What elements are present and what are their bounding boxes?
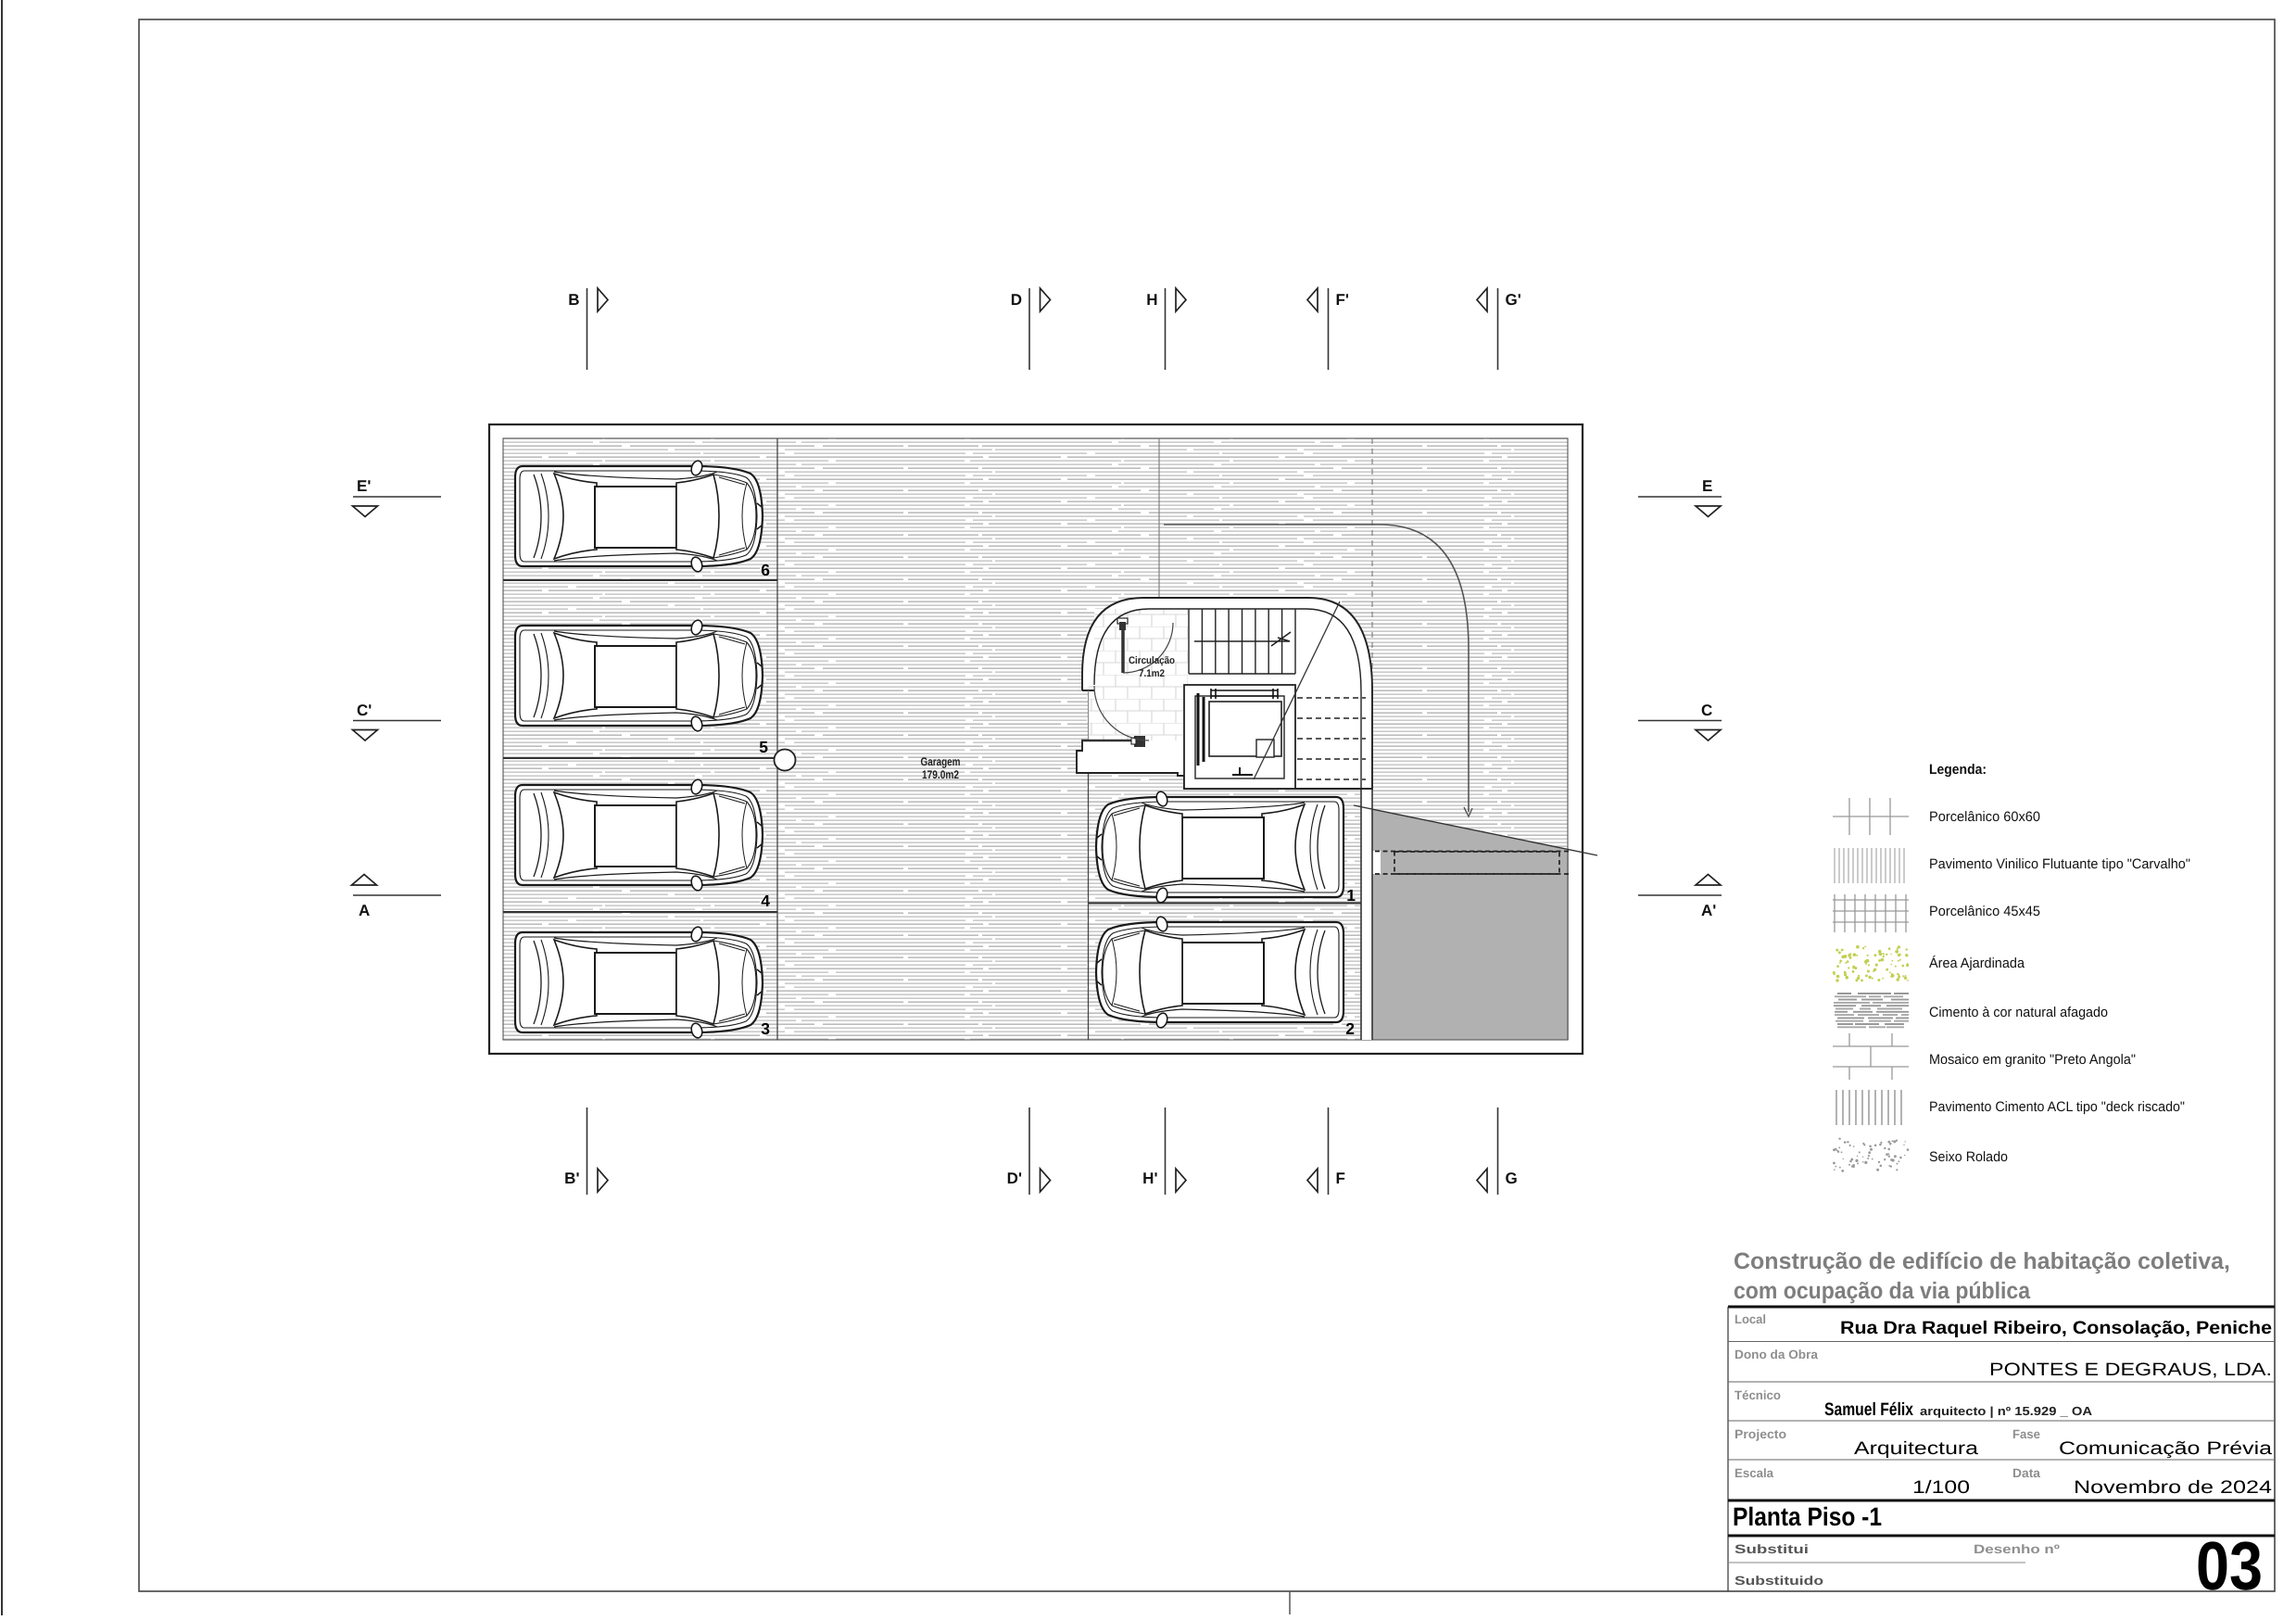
svg-text:Circulação: Circulação [1129, 655, 1175, 666]
svg-text:3: 3 [761, 1019, 770, 1038]
svg-text:Porcelânico 60x60: Porcelânico 60x60 [1929, 809, 2040, 825]
svg-text:1/100: 1/100 [1912, 1477, 1970, 1498]
svg-text:B: B [568, 291, 579, 309]
svg-text:4: 4 [761, 892, 770, 910]
svg-text:C: C [1701, 702, 1712, 719]
svg-text:Pavimento Cimento ACL tipo "de: Pavimento Cimento ACL tipo "deck riscado… [1929, 1099, 2185, 1115]
svg-text:Data: Data [2012, 1466, 2040, 1480]
svg-text:Escala: Escala [1735, 1466, 1773, 1480]
svg-text:C': C' [357, 702, 372, 719]
svg-text:Porcelânico 45x45: Porcelânico 45x45 [1929, 904, 2040, 919]
svg-text:Arquitectura: Arquitectura [1854, 1438, 1978, 1459]
svg-text:Técnico: Técnico [1735, 1388, 1781, 1402]
svg-text:Novembro de 2024: Novembro de 2024 [2074, 1477, 2272, 1498]
svg-text:Seixo Rolado: Seixo Rolado [1929, 1149, 2008, 1165]
svg-text:7.1m2: 7.1m2 [1139, 668, 1165, 679]
svg-text:Área Ajardinada: Área Ajardinada [1929, 955, 2025, 971]
svg-text:2: 2 [1345, 1019, 1355, 1038]
svg-text:Projecto: Projecto [1735, 1427, 1786, 1441]
svg-text:com ocupação da via pública: com ocupação da via pública [1734, 1278, 2031, 1304]
svg-text:Cimento à cor natural afagado: Cimento à cor natural afagado [1929, 1005, 2108, 1020]
svg-text:F: F [1336, 1170, 1345, 1187]
svg-text:Desenho nº: Desenho nº [1974, 1542, 2060, 1556]
svg-text:D': D' [1007, 1170, 1022, 1187]
svg-text:Mosaico em granito "Preto Ango: Mosaico em granito "Preto Angola" [1929, 1052, 2136, 1068]
svg-text:A: A [359, 902, 370, 919]
svg-text:Substitui: Substitui [1735, 1542, 1809, 1556]
svg-text:Dono da Obra: Dono da Obra [1735, 1348, 1818, 1361]
svg-text:E': E' [357, 477, 371, 495]
svg-text:Planta Piso -1: Planta Piso -1 [1733, 1502, 1882, 1531]
svg-text:PONTES E DEGRAUS, LDA.: PONTES E DEGRAUS, LDA. [1989, 1360, 2272, 1380]
svg-text:G': G' [1506, 291, 1521, 309]
svg-text:1: 1 [1346, 886, 1356, 905]
svg-text:arquitecto | nº 15.929 _ OA: arquitecto | nº 15.929 _ OA [1920, 1404, 2093, 1418]
svg-text:H': H' [1142, 1170, 1157, 1187]
svg-text:Comunicação Prévia: Comunicação Prévia [2059, 1438, 2272, 1459]
svg-text:Pavimento Vinilico Flutuante t: Pavimento Vinilico Flutuante tipo "Carva… [1929, 856, 2190, 872]
svg-text:Substituido: Substituido [1735, 1574, 1823, 1588]
svg-text:03: 03 [2196, 1527, 2263, 1604]
svg-text:Legenda:: Legenda: [1929, 762, 1987, 778]
svg-text:Construção de edifício de habi: Construção de edifício de habitação cole… [1734, 1248, 2230, 1274]
svg-text:E: E [1702, 477, 1712, 495]
svg-text:6: 6 [761, 561, 770, 579]
svg-text:Rua Dra Raquel Ribeiro, Consol: Rua Dra Raquel Ribeiro, Consolação, Peni… [1840, 1318, 2272, 1338]
svg-text:H: H [1146, 291, 1157, 309]
svg-text:Fase: Fase [2012, 1427, 2040, 1441]
svg-text:Samuel Félix: Samuel Félix [1824, 1399, 1913, 1420]
svg-text:B': B' [564, 1170, 579, 1187]
svg-text:F': F' [1336, 291, 1349, 309]
svg-text:179.0m2: 179.0m2 [922, 768, 959, 781]
svg-text:Garagem: Garagem [921, 755, 961, 768]
svg-text:A': A' [1701, 902, 1716, 919]
svg-text:5: 5 [759, 738, 768, 756]
svg-text:D: D [1011, 291, 1022, 309]
svg-text:Local: Local [1735, 1312, 1766, 1326]
svg-text:G: G [1506, 1170, 1518, 1187]
